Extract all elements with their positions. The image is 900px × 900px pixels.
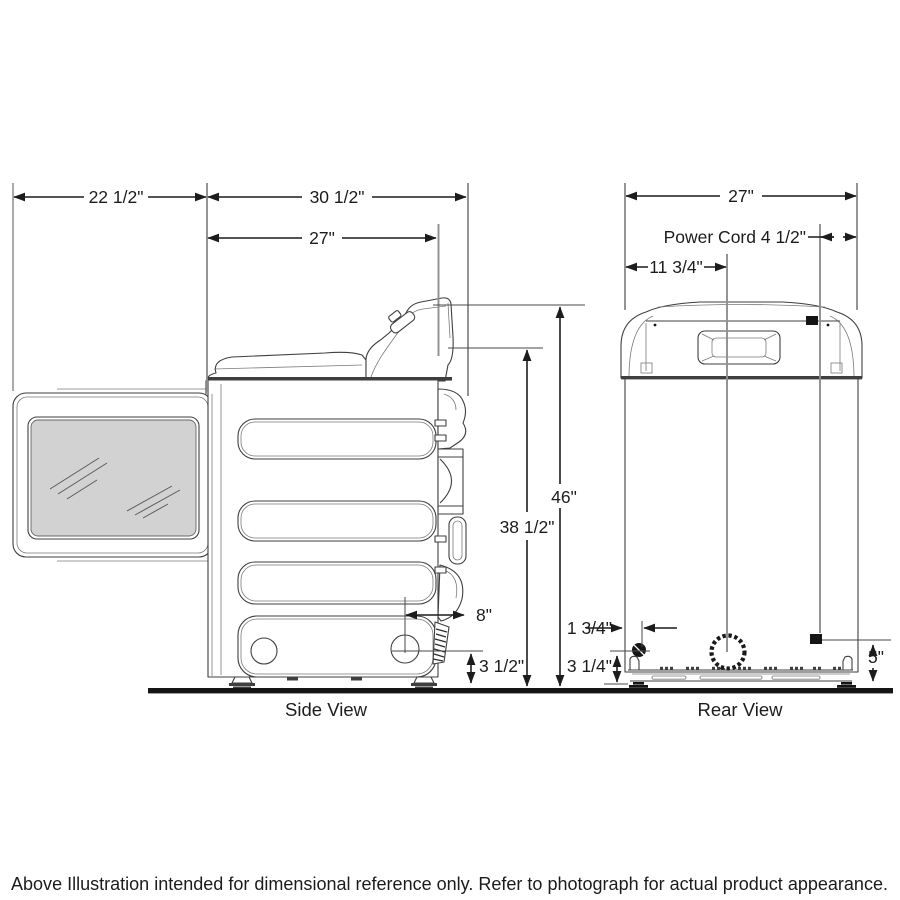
exhaust-vent (712, 636, 745, 669)
power-cord-exit (806, 316, 818, 325)
open-door (13, 389, 212, 561)
dim-label-depth-total: 30 1/2" (310, 187, 365, 207)
dim-label-height-total: 46" (551, 487, 577, 507)
dim-label-inlet-offset: 1 3/4" (567, 618, 612, 638)
dim-label-rear-width: 27" (728, 186, 754, 206)
floor-line (148, 688, 893, 693)
door-window-glass (31, 420, 196, 536)
dim-label-height-cabinet: 38 1/2" (500, 517, 555, 537)
rear-view-label: Rear View (697, 699, 783, 720)
dimension-drawing: 22 1/2" 30 1/2" 27" 27" Power Cord 4 1/2… (0, 0, 900, 900)
rear-console (621, 302, 862, 378)
dim-label-vent-to-rear: 8" (476, 605, 492, 625)
rear-seam (621, 376, 862, 379)
dim-label-inlet-height: 3 1/4" (567, 656, 612, 676)
dim-label-terminal-height: 5" (868, 647, 884, 667)
dim-label-vent-height-side: 3 1/2" (479, 656, 524, 676)
dim-label-depth-cabinet: 27" (309, 228, 335, 248)
dim-label-door-clearance: 22 1/2" (89, 187, 144, 207)
dim-label-vent-offset-left: 11 3/4" (649, 257, 703, 277)
dimension-diagram-page: 22 1/2" 30 1/2" 27" 27" Power Cord 4 1/2… (0, 0, 900, 900)
side-view-label: Side View (285, 699, 368, 720)
side-cabinet (206, 298, 466, 689)
rear-view-drawing (621, 302, 862, 690)
dim-label-power-cord: Power Cord 4 1/2" (664, 227, 806, 247)
base-tabs (660, 667, 841, 670)
footer-disclaimer: Above Illustration intended for dimensio… (11, 874, 888, 894)
terminal-block (810, 634, 822, 644)
